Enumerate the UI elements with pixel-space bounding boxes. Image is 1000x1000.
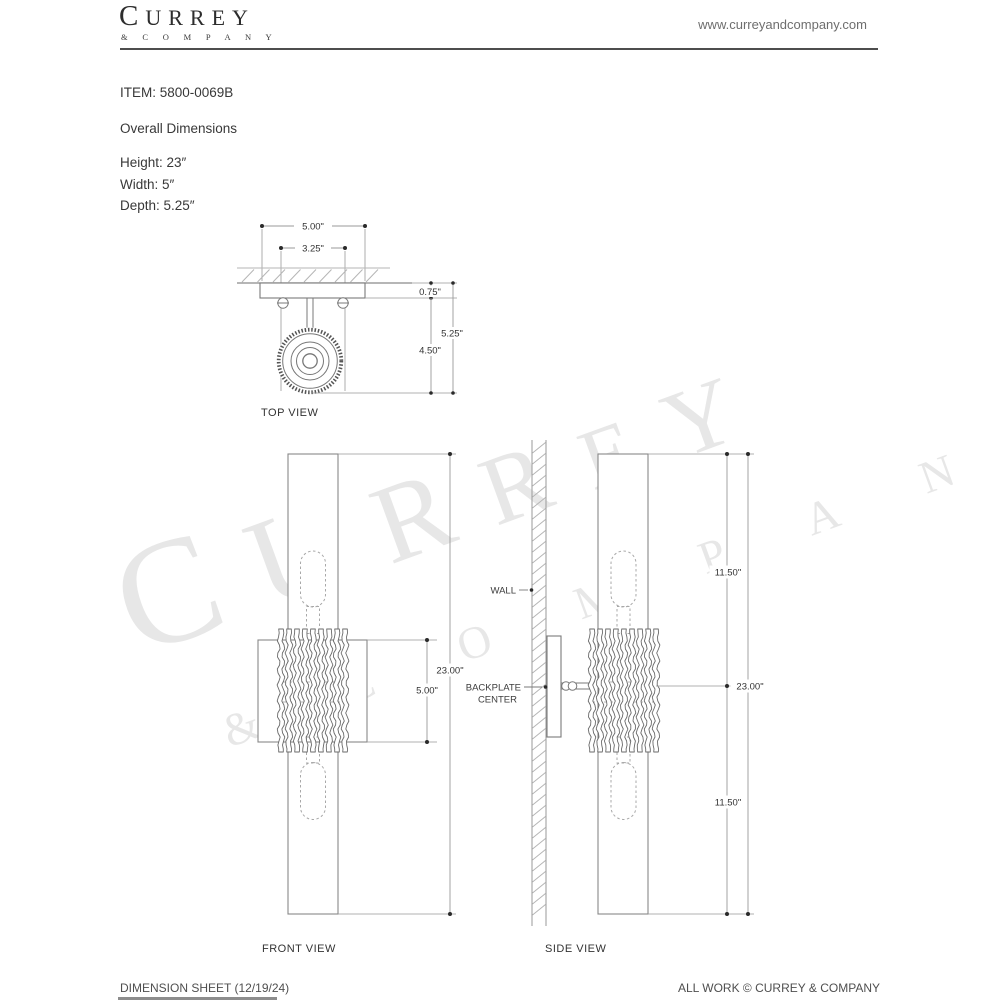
dimension-drawing-canvas: 5.00" 3.25" xyxy=(0,0,1000,1000)
top-dim-overall-depth: 5.25" xyxy=(441,329,463,340)
wall-annotation: WALL xyxy=(490,586,516,597)
arm-knuckle xyxy=(562,682,577,691)
top-view-drawing: 5.00" 3.25" xyxy=(237,219,472,419)
front-dim-backplate: 5.00" xyxy=(416,686,438,697)
backplate-center-annotation-line2: CENTER xyxy=(478,695,517,706)
top-dim-projection: 4.50" xyxy=(419,346,441,357)
fluted-shade-top xyxy=(277,328,344,395)
side-backplate xyxy=(547,636,561,737)
front-view-label: FRONT VIEW xyxy=(262,943,336,955)
side-dim-height: 23.00" xyxy=(736,682,763,693)
top-view-label: TOP VIEW xyxy=(261,407,319,419)
side-view-label: SIDE VIEW xyxy=(545,943,606,955)
side-dim-lower: 11.50" xyxy=(715,798,741,809)
wall-hatch-side xyxy=(533,443,546,916)
side-dim-upper: 11.50" xyxy=(715,568,741,579)
top-backplate xyxy=(260,283,365,298)
top-dim-inner-width: 3.25" xyxy=(302,244,324,255)
top-dim-backplate-depth: 0.75" xyxy=(419,287,441,298)
front-view-drawing: 23.00" 5.00" FRONT VIEW xyxy=(258,452,470,955)
top-dim-width: 5.00" xyxy=(302,222,324,233)
side-view-drawing: 11.50" 11.50" 23.00" WALL BACKPLATE CENT… xyxy=(466,440,771,955)
side-fluted-shade xyxy=(588,629,660,752)
front-dim-height: 23.00" xyxy=(436,666,463,677)
front-fluted-shade xyxy=(277,629,349,752)
backplate-center-annotation-line1: BACKPLATE xyxy=(466,683,521,694)
